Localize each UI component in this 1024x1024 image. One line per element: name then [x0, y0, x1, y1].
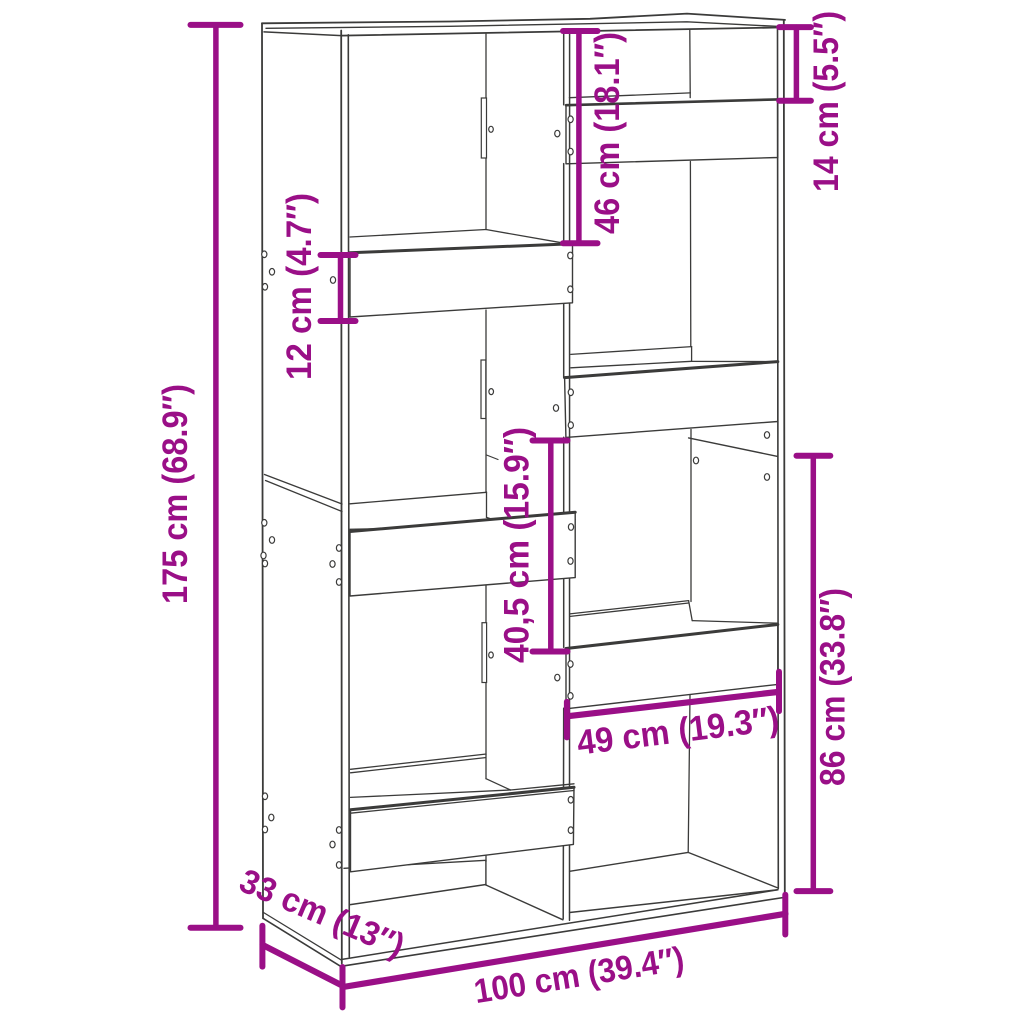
- svg-text:40,5 cm (15.9″): 40,5 cm (15.9″): [497, 427, 536, 663]
- svg-text:12 cm (4.7″): 12 cm (4.7″): [280, 193, 319, 380]
- svg-text:46 cm (18.1″): 46 cm (18.1″): [588, 32, 627, 234]
- svg-text:86 cm (33.8″): 86 cm (33.8″): [814, 588, 853, 786]
- svg-text:14 cm (5.5″): 14 cm (5.5″): [807, 11, 846, 192]
- svg-text:175 cm (68.9″): 175 cm (68.9″): [156, 384, 195, 604]
